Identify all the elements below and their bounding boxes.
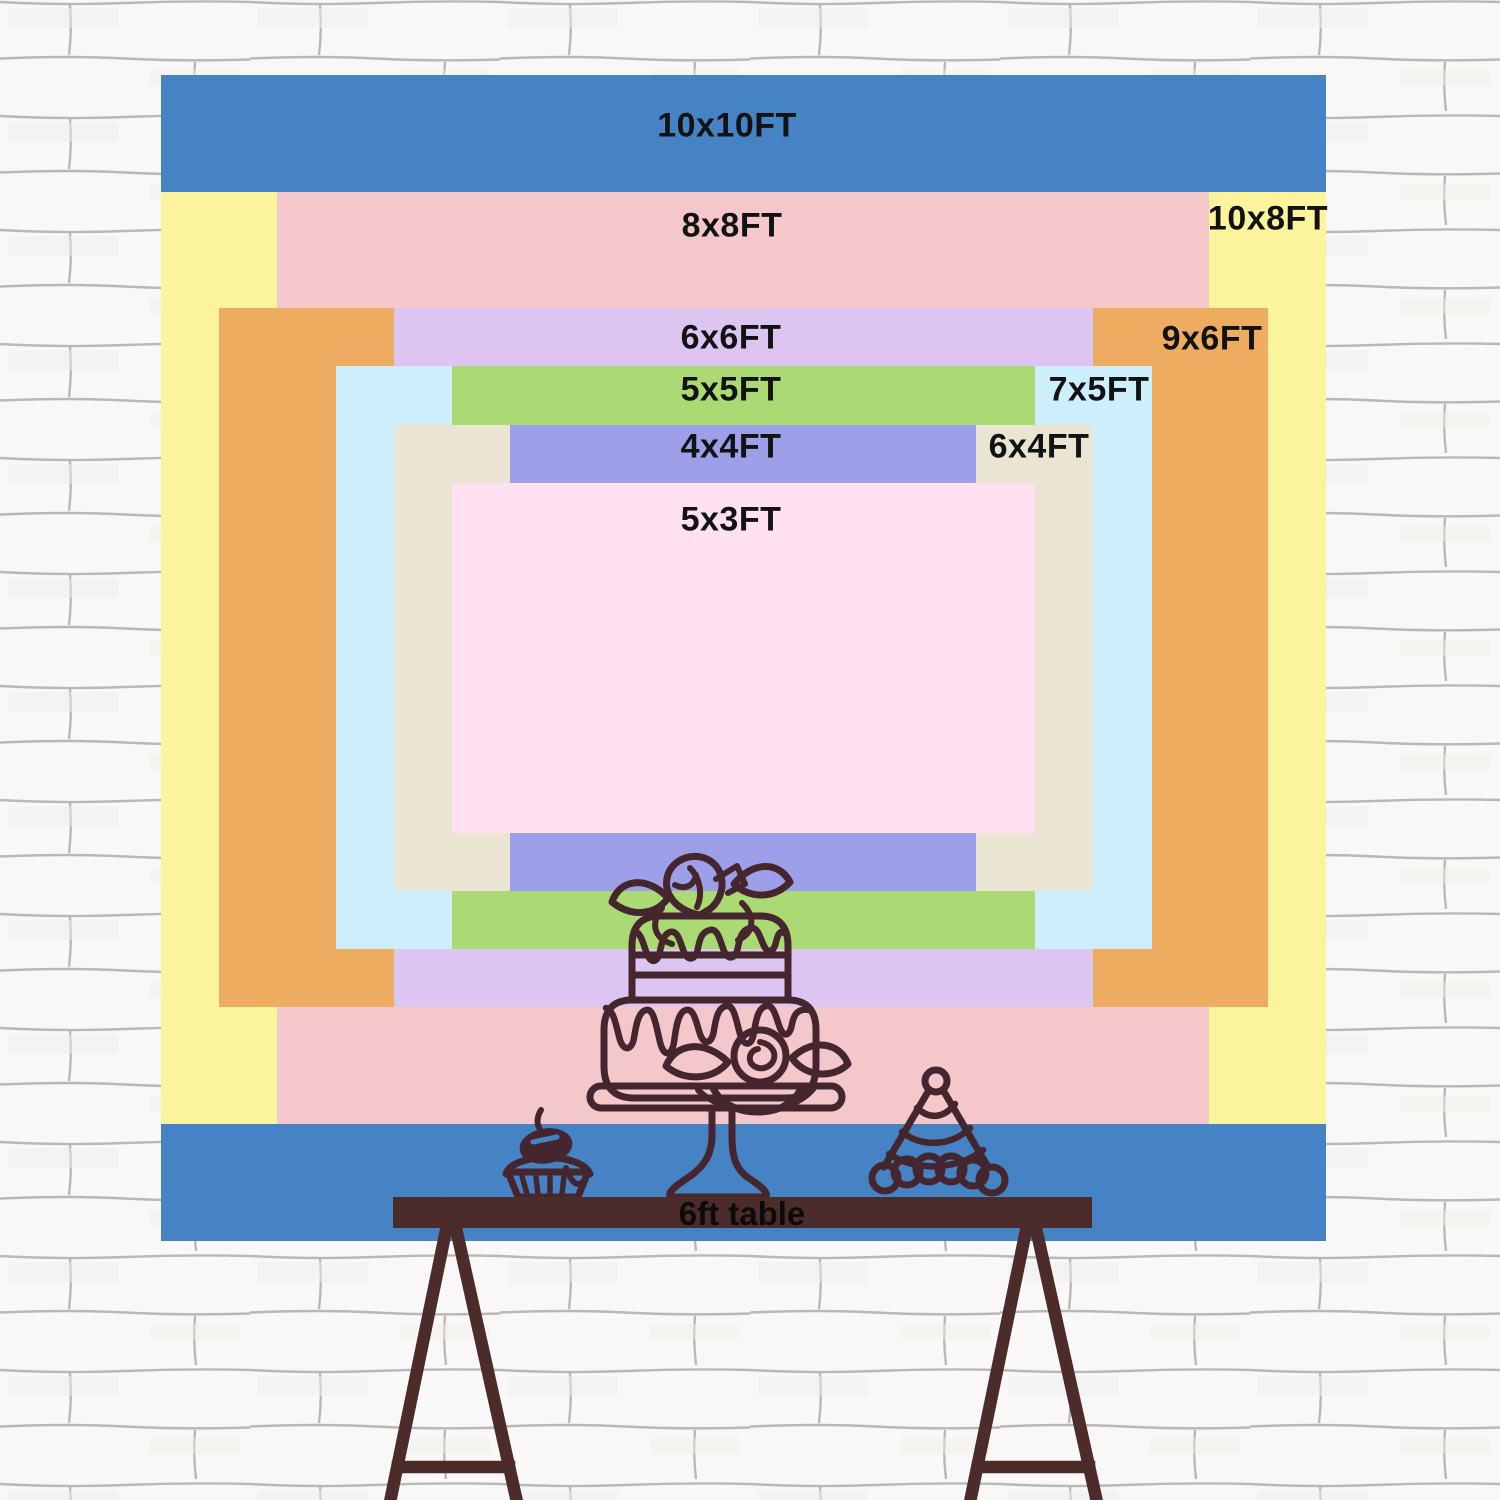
cake-illustration <box>590 856 848 1197</box>
table <box>390 1197 1097 1500</box>
scene: 10x10FT 8x8FT 10x8FT 6x6FT 9x6FT 5x5FT 7… <box>0 0 1500 1500</box>
cupcake-illustration <box>506 1110 590 1197</box>
table-leg-left <box>390 1206 517 1500</box>
table-size-label: 6ft table <box>679 1195 806 1233</box>
party-hat-illustration <box>872 1070 1005 1193</box>
table-leg-right <box>970 1206 1097 1500</box>
table-and-cake-illustration <box>0 0 1500 1500</box>
